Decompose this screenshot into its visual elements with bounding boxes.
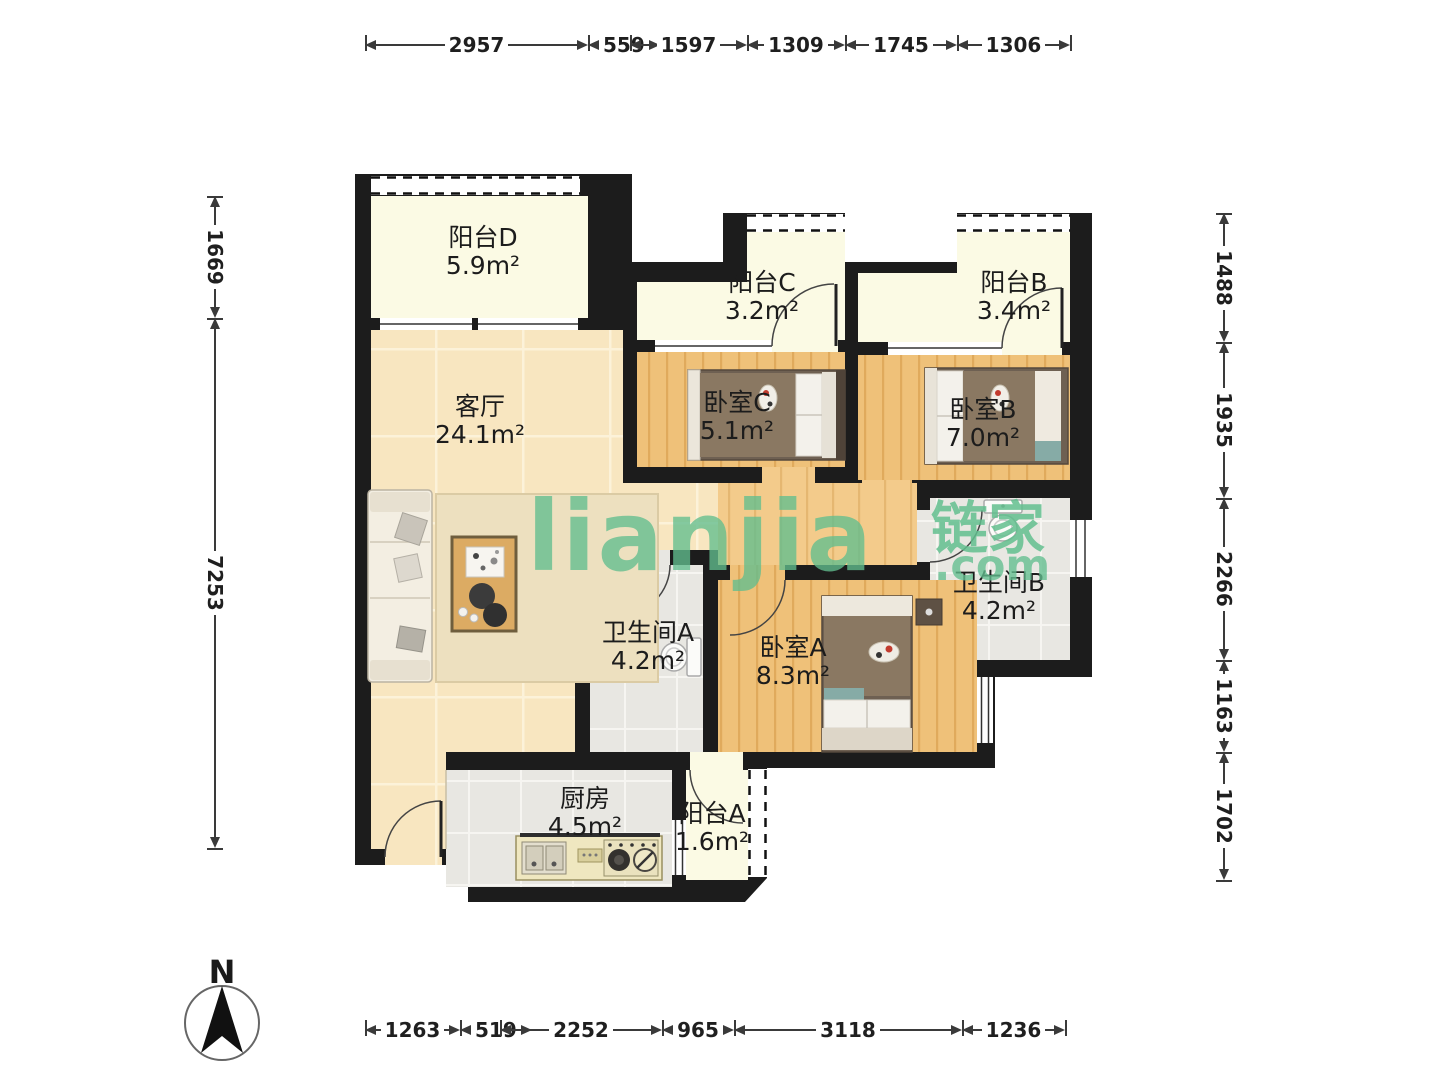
dim-right-0: 1488 bbox=[1212, 213, 1236, 342]
door-gap bbox=[730, 565, 785, 580]
door-gap bbox=[1002, 342, 1062, 355]
room-area: 8.3m² bbox=[756, 662, 830, 690]
dim-value: 1163 bbox=[1212, 676, 1236, 736]
room-name: 客厅 bbox=[435, 393, 525, 421]
entry-door-gap bbox=[385, 849, 442, 865]
room-area: 5.1m² bbox=[700, 417, 774, 445]
dim-left-0: 1669 bbox=[203, 196, 227, 318]
dim-right-2: 2266 bbox=[1212, 498, 1236, 660]
stove-icon bbox=[604, 840, 658, 876]
door-gap bbox=[690, 752, 743, 770]
dim-left-1: 7253 bbox=[203, 318, 227, 848]
room-name: 卧室A bbox=[756, 634, 830, 662]
room-label-balcony-c: 阳台C 3.2m² bbox=[725, 269, 799, 325]
room-label-bedroom-c: 卧室C 5.1m² bbox=[700, 389, 774, 445]
sofa bbox=[368, 490, 432, 682]
dim-bottom-4: 3118 bbox=[734, 1018, 962, 1042]
dim-value: 1236 bbox=[982, 1018, 1046, 1042]
room-label-balcony-d: 阳台D 5.9m² bbox=[446, 224, 520, 280]
dim-right-1: 1935 bbox=[1212, 342, 1236, 498]
dim-bottom-3: 965 bbox=[662, 1018, 734, 1042]
room-area: 4.2m² bbox=[953, 597, 1045, 625]
room-name: 阳台D bbox=[446, 224, 520, 252]
door-gap bbox=[917, 510, 930, 562]
dim-bottom-1: 519 bbox=[460, 1018, 500, 1042]
dim-value: 1306 bbox=[982, 33, 1046, 57]
room-area: 4.5m² bbox=[548, 813, 622, 841]
room-area: 7.0m² bbox=[946, 424, 1020, 452]
compass-icon bbox=[185, 986, 259, 1060]
dim-value: 1597 bbox=[657, 33, 721, 57]
room-area: 3.4m² bbox=[977, 297, 1051, 325]
dim-value: 1935 bbox=[1212, 390, 1236, 450]
room-name: 卫生间B bbox=[953, 569, 1045, 597]
dim-right-3: 1163 bbox=[1212, 660, 1236, 752]
sink-icon bbox=[522, 842, 566, 874]
window bbox=[977, 677, 993, 743]
room-name: 阳台C bbox=[725, 269, 799, 297]
room-label-kitchen: 厨房 4.5m² bbox=[548, 785, 622, 841]
room-name: 卧室C bbox=[700, 389, 774, 417]
room-label-balcony-a: 阳台A 1.6m² bbox=[675, 800, 749, 856]
room-label-bathroom-a: 卫生间A 4.2m² bbox=[602, 619, 694, 675]
room-label-bedroom-b: 卧室B 7.0m² bbox=[946, 396, 1020, 452]
room-name: 卧室B bbox=[946, 396, 1020, 424]
dim-value: 2252 bbox=[549, 1018, 613, 1042]
room-area: 3.2m² bbox=[725, 297, 799, 325]
dim-value: 1263 bbox=[381, 1018, 445, 1042]
dim-value: 3118 bbox=[816, 1018, 880, 1042]
dim-top-2: 1597 bbox=[630, 33, 747, 57]
dim-value: 1488 bbox=[1212, 248, 1236, 308]
dim-value: 1309 bbox=[764, 33, 828, 57]
door-gap bbox=[762, 467, 815, 483]
room-name: 厨房 bbox=[548, 785, 622, 813]
door-gap bbox=[862, 480, 912, 498]
compass-label: N bbox=[209, 953, 236, 991]
dim-value: 965 bbox=[673, 1018, 723, 1042]
window bbox=[1070, 520, 1092, 577]
dim-value: 2957 bbox=[445, 33, 509, 57]
dim-top-0: 2957 bbox=[365, 33, 588, 57]
room-name: 阳台A bbox=[675, 800, 749, 828]
room-area: 1.6m² bbox=[675, 828, 749, 856]
dim-value: 7253 bbox=[203, 553, 227, 613]
dim-value: 2266 bbox=[1212, 549, 1236, 609]
room-area: 5.9m² bbox=[446, 252, 520, 280]
dim-right-4: 1702 bbox=[1212, 752, 1236, 880]
room-label-bedroom-a: 卧室A 8.3m² bbox=[756, 634, 830, 690]
dim-bottom-5: 1236 bbox=[962, 1018, 1065, 1042]
room-area: 4.2m² bbox=[602, 647, 694, 675]
dim-value: 1745 bbox=[869, 33, 933, 57]
dim-bottom-0: 1263 bbox=[365, 1018, 460, 1042]
dim-value: 1669 bbox=[203, 227, 227, 287]
floorplan-page: lianjia 链家 .com 阳台D 5.9m² 客厅 24.1m² 阳台C … bbox=[0, 0, 1440, 1080]
room-name: 阳台B bbox=[977, 269, 1051, 297]
dim-top-5: 1306 bbox=[957, 33, 1070, 57]
dim-bottom-2: 2252 bbox=[500, 1018, 662, 1042]
dim-value: 1702 bbox=[1212, 786, 1236, 846]
dim-top-3: 1309 bbox=[747, 33, 845, 57]
room-area: 24.1m² bbox=[435, 421, 525, 449]
room-name: 卫生间A bbox=[602, 619, 694, 647]
room-label-balcony-b: 阳台B 3.4m² bbox=[977, 269, 1051, 325]
dim-top-4: 1745 bbox=[845, 33, 957, 57]
door-gap bbox=[772, 340, 838, 352]
room-label-living: 客厅 24.1m² bbox=[435, 393, 525, 449]
room-label-bathroom-b: 卫生间B 4.2m² bbox=[953, 569, 1045, 625]
dim-top-1: 559 bbox=[588, 33, 630, 57]
coffee-table bbox=[452, 537, 516, 631]
